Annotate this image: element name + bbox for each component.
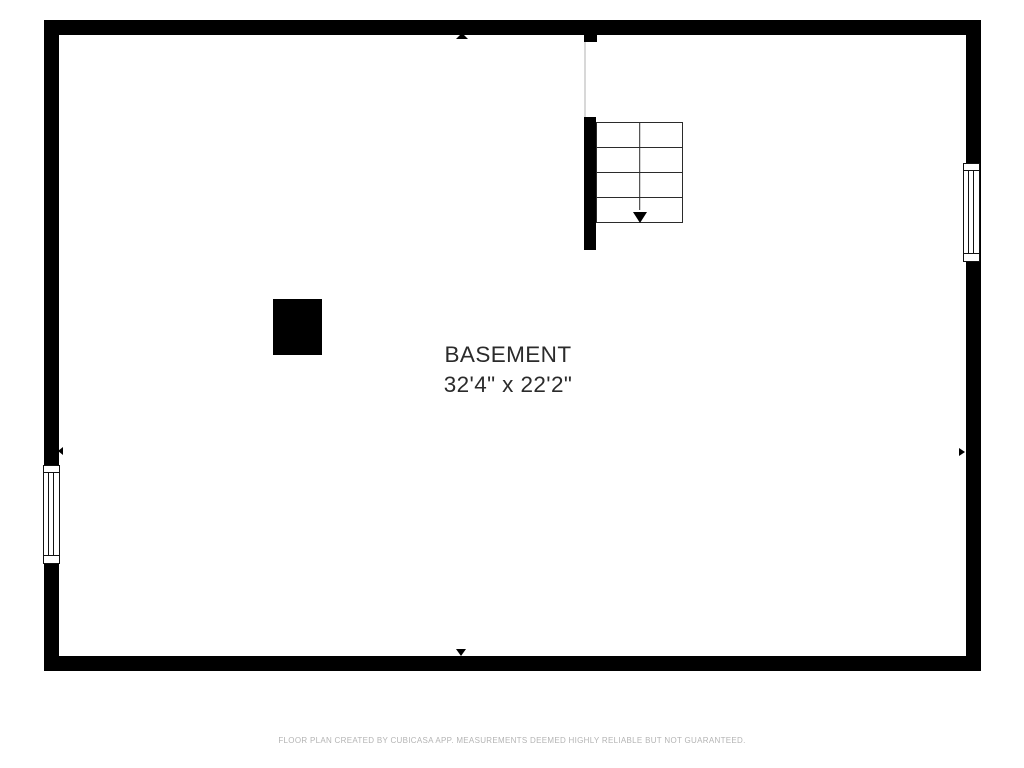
stair-wall-stub	[584, 34, 597, 42]
floor-plan-canvas: BASEMENT 32'4" x 22'2" FLOOR PLAN CREATE…	[0, 0, 1024, 768]
window-frame-bottom	[44, 555, 59, 556]
room-dimensions: 32'4" x 22'2"	[444, 370, 573, 400]
footer-disclaimer: FLOOR PLAN CREATED BY CUBICASA APP. MEAS…	[0, 736, 1024, 745]
staircase	[596, 122, 683, 223]
window-glass-line	[973, 171, 974, 253]
window-glass-line	[48, 473, 49, 555]
wall-marker-left-icon	[58, 447, 63, 455]
window-glass-line	[53, 473, 54, 555]
stair-center-line	[639, 123, 641, 210]
outer-wall-top	[44, 20, 981, 35]
window-left-wall	[43, 465, 60, 564]
room-label-block: BASEMENT 32'4" x 22'2"	[444, 340, 573, 399]
outer-wall-left	[44, 20, 59, 671]
room-name: BASEMENT	[444, 340, 573, 370]
window-frame-bottom	[964, 253, 979, 254]
outer-wall-bottom	[44, 656, 981, 671]
stair-opening-line	[584, 42, 586, 117]
wall-marker-up-icon	[456, 33, 468, 39]
wall-marker-right-icon	[959, 448, 965, 456]
stair-side-wall	[584, 117, 596, 250]
outer-wall-right	[966, 20, 981, 671]
window-frame-top	[964, 170, 979, 171]
window-glass-line	[968, 171, 969, 253]
window-frame-top	[44, 472, 59, 473]
support-column	[273, 299, 322, 355]
window-right-wall	[963, 163, 980, 262]
stair-direction-arrow-icon	[633, 212, 647, 223]
wall-marker-down-icon	[456, 649, 466, 656]
